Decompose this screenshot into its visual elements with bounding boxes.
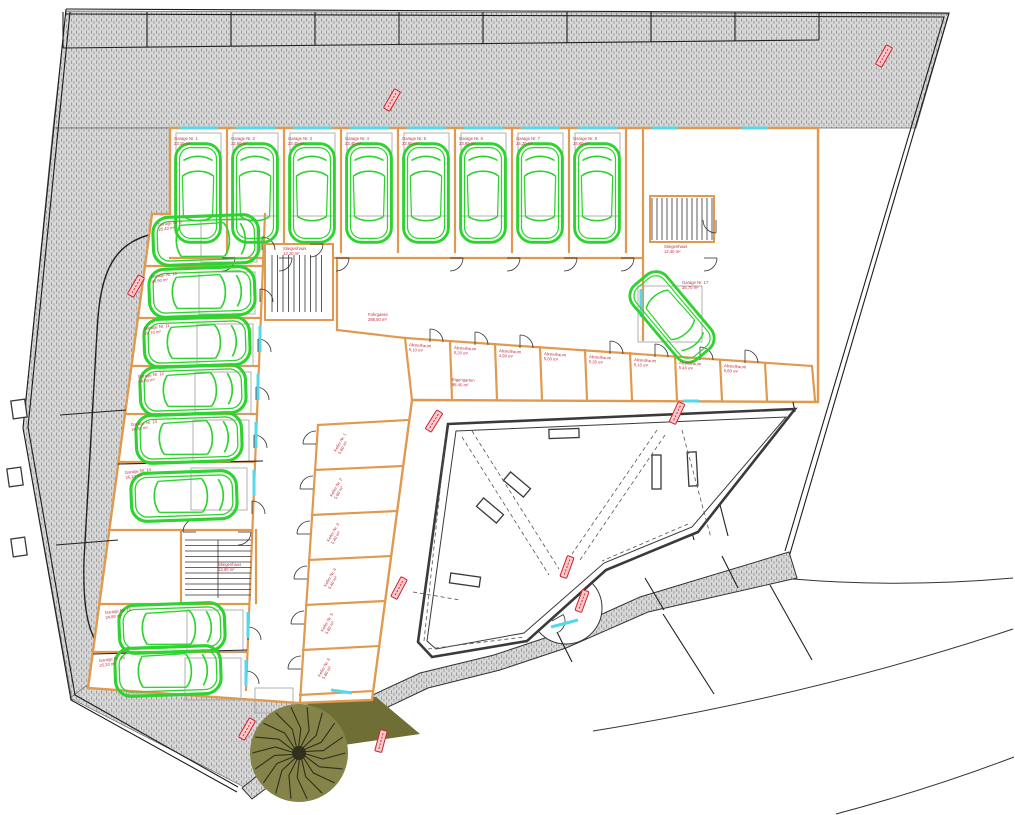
planter: [549, 428, 579, 438]
site-hatch-top-band: [53, 11, 949, 128]
boundary-step: [11, 537, 27, 557]
boundary-step: [11, 399, 27, 419]
tree-trunk: [292, 746, 306, 760]
room-label: Fahrgasse286,50 m²: [368, 312, 388, 322]
planter: [652, 455, 661, 489]
floor-plan-canvas: Garage Nr. 123,10 m²Garage Nr. 222,80 m²…: [0, 0, 1015, 815]
site-plan-drawing: Garage Nr. 123,10 m²Garage Nr. 222,80 m²…: [0, 0, 1015, 815]
planter: [687, 452, 698, 486]
boundary-step: [7, 467, 23, 487]
tree-icon: [250, 704, 348, 802]
